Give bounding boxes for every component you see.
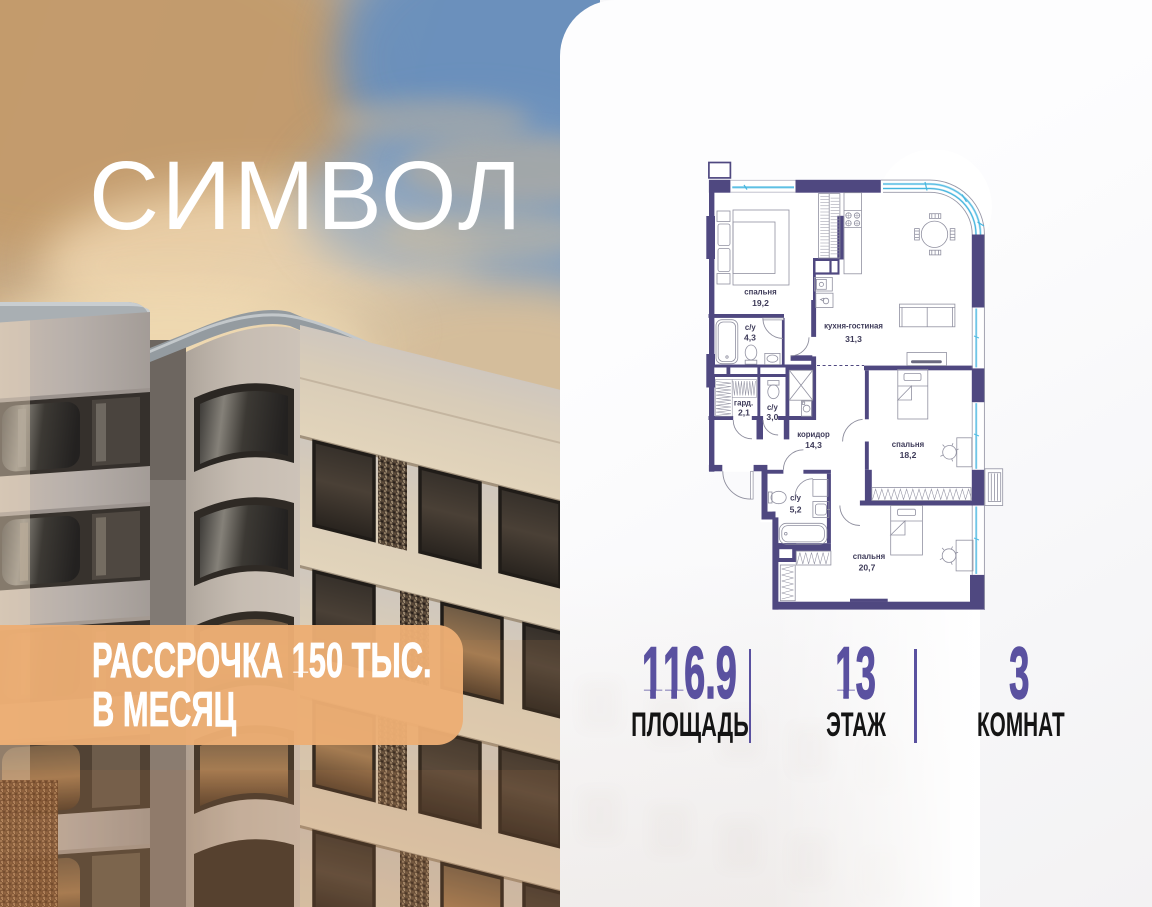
svg-text:кухня-гостиная: кухня-гостиная	[824, 322, 883, 331]
svg-text:гард.: гард.	[734, 399, 753, 408]
svg-text:2,1: 2,1	[738, 407, 750, 417]
svg-text:спальня: спальня	[744, 288, 776, 297]
svg-text:18,2: 18,2	[900, 450, 917, 460]
svg-text:4,3: 4,3	[744, 333, 756, 343]
svg-text:с/у: с/у	[745, 323, 757, 332]
svg-text:с/у: с/у	[790, 494, 802, 503]
svg-text:19,2: 19,2	[752, 298, 769, 308]
svg-text:спальня: спальня	[853, 552, 885, 561]
svg-text:коридор: коридор	[797, 430, 830, 439]
svg-text:спальня: спальня	[892, 440, 924, 449]
svg-text:с/у: с/у	[767, 403, 779, 412]
svg-text:20,7: 20,7	[859, 563, 876, 573]
svg-text:3,0: 3,0	[766, 412, 778, 422]
svg-text:31,3: 31,3	[845, 334, 862, 344]
svg-text:5,2: 5,2	[790, 504, 802, 514]
svg-text:14,3: 14,3	[805, 440, 822, 450]
